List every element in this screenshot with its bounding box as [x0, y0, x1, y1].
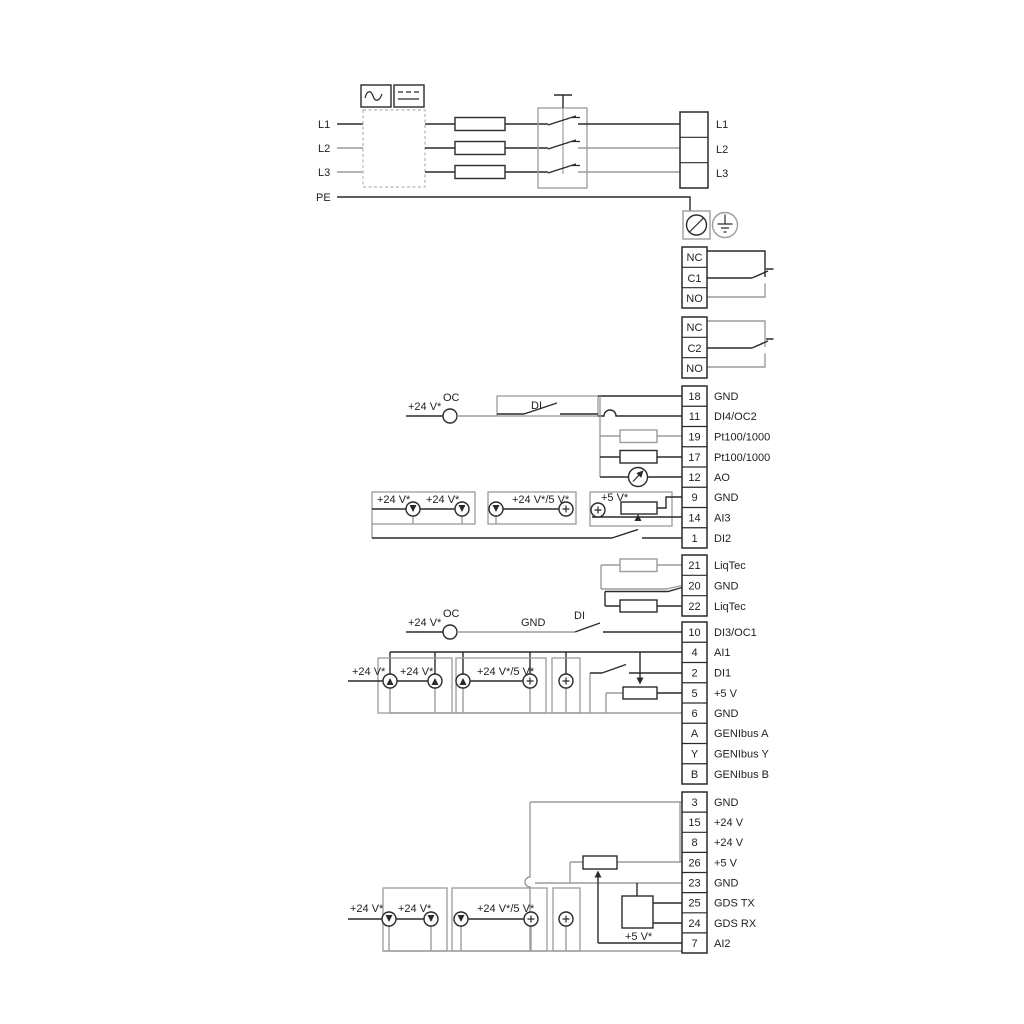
di2-switch-wire [372, 530, 682, 539]
t10-label: DI3/OC1 [714, 627, 757, 639]
di3-oc-label: OC [443, 608, 460, 620]
t12-label: AO [714, 472, 730, 484]
ai1-pot-gnd-wires [590, 673, 623, 713]
di4-switch-icon [497, 403, 598, 414]
t14-label: AI3 [714, 513, 731, 525]
di4-oc-label: OC [443, 392, 460, 404]
fuse-l3 [455, 166, 505, 179]
relay1-no-wire [707, 284, 765, 298]
ta-label: GENIbus A [714, 728, 769, 740]
di4-24v-label: +24 V* [408, 401, 442, 413]
relay2-no-label: NO [686, 363, 703, 375]
mains-label-l2: L2 [318, 143, 330, 155]
t3-label: GND [714, 797, 739, 809]
t6-num: 6 [691, 708, 697, 720]
tb-label: GENIbus B [714, 769, 769, 781]
ac-symbol-box [361, 85, 391, 107]
t18-label: GND [714, 391, 739, 403]
liqtec-sensor-b-icon [620, 600, 657, 612]
relay1-no-label: NO [686, 293, 703, 305]
relay2-nc-wire [707, 321, 765, 347]
terminal-block-2: 21 20 22 LiqTec GND LiqTec [682, 555, 746, 616]
t3-num: 3 [691, 797, 697, 809]
t12-num: 12 [688, 472, 700, 484]
t26-label: +5 V [714, 858, 738, 870]
liqtec-sensor-a-icon [620, 559, 657, 572]
t18-num: 18 [688, 391, 700, 403]
t15-num: 15 [688, 817, 700, 829]
t9-num: 9 [691, 492, 697, 504]
di3-gnd-label: GND [521, 617, 546, 629]
switch-handle-icon [554, 95, 572, 108]
t1-num: 1 [691, 533, 697, 545]
t11-num: 11 [689, 411, 700, 423]
pe-screw-terminal [683, 211, 710, 239]
terminal-block-4: 3 15 8 26 23 25 24 7 GND +24 V +24 V +5 … [682, 792, 757, 953]
relay2-nc-label: NC [687, 322, 703, 334]
ai2-5v-label: +5 V* [625, 931, 653, 943]
t24-num: 24 [688, 918, 700, 930]
ty-label: GENIbus Y [714, 749, 769, 761]
gnd-return-riser [525, 802, 530, 951]
t4-label: AI1 [714, 647, 731, 659]
filter-dashed-box [363, 110, 425, 187]
relay2-no-wire [707, 354, 765, 368]
di3-24v-label: +24 V* [408, 617, 442, 629]
t23-label: GND [714, 878, 739, 890]
di3-di-label: DI [574, 610, 585, 622]
wire-pe [337, 197, 690, 211]
terminal-label-out-l1: L1 [716, 119, 728, 131]
t7-label: AI2 [714, 938, 731, 950]
t19-label: Pt100/1000 [714, 432, 770, 444]
t11-label: DI4/OC2 [714, 411, 757, 423]
ai1-24v-b-label: +24 V* [400, 666, 434, 678]
relay2-block: NC C2 NO [682, 317, 774, 378]
wire-t9 [657, 497, 682, 508]
t20-label: GND [714, 581, 739, 593]
ta-num: A [691, 728, 699, 740]
tb1-circuits: +24 V* OC DI +5 V* +24 V* +24 V* +24 [372, 392, 682, 538]
relay1-nc-wire [707, 251, 765, 277]
t17-label: Pt100/1000 [714, 452, 770, 464]
t5-label: +5 V [714, 688, 738, 700]
t22-label: LiqTec [714, 601, 746, 613]
relay1-block: NC C1 NO [682, 247, 774, 308]
ai2-potentiometer-icon [583, 856, 617, 869]
tb2-circuits [601, 559, 682, 612]
gds-sensor-icon [622, 896, 653, 928]
mains-label-pe: PE [316, 192, 331, 204]
t9-label: GND [714, 492, 739, 504]
terminal-block-1: 18 11 19 17 12 9 14 1 GND DI4/OC2 Pt100/… [682, 386, 770, 548]
t8-label: +24 V [714, 837, 744, 849]
relay2-com-contact [707, 339, 774, 348]
terminal-block-mains [680, 112, 708, 188]
ty-num: Y [691, 749, 699, 761]
t25-label: GDS TX [714, 898, 755, 910]
ai3-potentiometer-icon [621, 502, 657, 514]
ai3-option-drops [413, 516, 496, 524]
relay1-com-label: C1 [687, 273, 701, 285]
terminal-label-out-l3: L3 [716, 168, 728, 180]
t10-num: 10 [688, 627, 700, 639]
t15-label: +24 V [714, 817, 744, 829]
switch-blades [548, 116, 576, 173]
tb3-circuits: +24 V* OC GND DI +24 V* +24 V* +24 V*/5 … [348, 608, 682, 713]
t1-label: DI2 [714, 533, 731, 545]
t17-num: 17 [688, 452, 700, 464]
ai3-24v-b-label: +24 V* [426, 494, 460, 506]
t26-num: 26 [688, 858, 700, 870]
main-switch [538, 95, 587, 188]
t7-num: 7 [691, 938, 697, 950]
t4-num: 4 [691, 647, 697, 659]
di3-switch-icon [575, 623, 682, 632]
relay1-com-contact [707, 269, 774, 278]
ai1-option-drops [390, 689, 566, 714]
fuse-l2 [455, 142, 505, 155]
t8-num: 8 [691, 837, 697, 849]
t21-label: LiqTec [714, 560, 746, 572]
pt100-sensor-a-icon [620, 430, 657, 443]
fuse-l1 [455, 118, 505, 131]
t2-label: DI1 [714, 668, 731, 680]
wiring-diagram: L1 L2 L3 PE [0, 0, 1024, 1024]
di1-switch-icon [590, 665, 682, 674]
ai3-24v-a-label: +24 V* [377, 494, 411, 506]
t23-num: 23 [688, 878, 700, 890]
dc-symbol-box [394, 85, 424, 107]
t25-num: 25 [688, 898, 700, 910]
wire-t11 [598, 410, 682, 416]
tb4-circuits: +5 V* +24 V* +24 V* +24 V*/5 V* [348, 802, 682, 951]
t2-num: 2 [691, 668, 697, 680]
earth-ground-icon [713, 213, 738, 238]
ai2-24v-a-label: +24 V* [350, 903, 384, 915]
mains-label-l1: L1 [318, 119, 330, 131]
mains-section: L1 L2 L3 PE [316, 85, 738, 239]
t21-num: 21 [688, 560, 700, 572]
oc-terminal-icon [443, 625, 457, 639]
relay2-com-label: C2 [687, 343, 701, 355]
t24-label: GDS RX [714, 918, 757, 930]
ai2-option-drops [389, 927, 566, 952]
pt100-sensor-b-icon [620, 451, 657, 464]
tb-num: B [691, 769, 698, 781]
t20-num: 20 [688, 581, 700, 593]
oc-terminal-icon [443, 409, 457, 423]
t14-num: 14 [688, 513, 700, 525]
terminal-label-out-l2: L2 [716, 144, 728, 156]
mains-label-l3: L3 [318, 167, 330, 179]
ai1-24v-a-label: +24 V* [352, 666, 386, 678]
t6-label: GND [714, 708, 739, 720]
relay1-nc-label: NC [687, 252, 703, 264]
ai1-potentiometer-icon [623, 687, 657, 699]
t5-num: 5 [691, 688, 697, 700]
terminal-block-3: 10 4 2 5 6 A Y B DI3/OC1 AI1 DI1 +5 V GN… [682, 622, 769, 784]
diagram-svg: L1 L2 L3 PE [0, 0, 1024, 1024]
t19-num: 19 [688, 432, 700, 444]
t22-num: 22 [688, 601, 700, 613]
